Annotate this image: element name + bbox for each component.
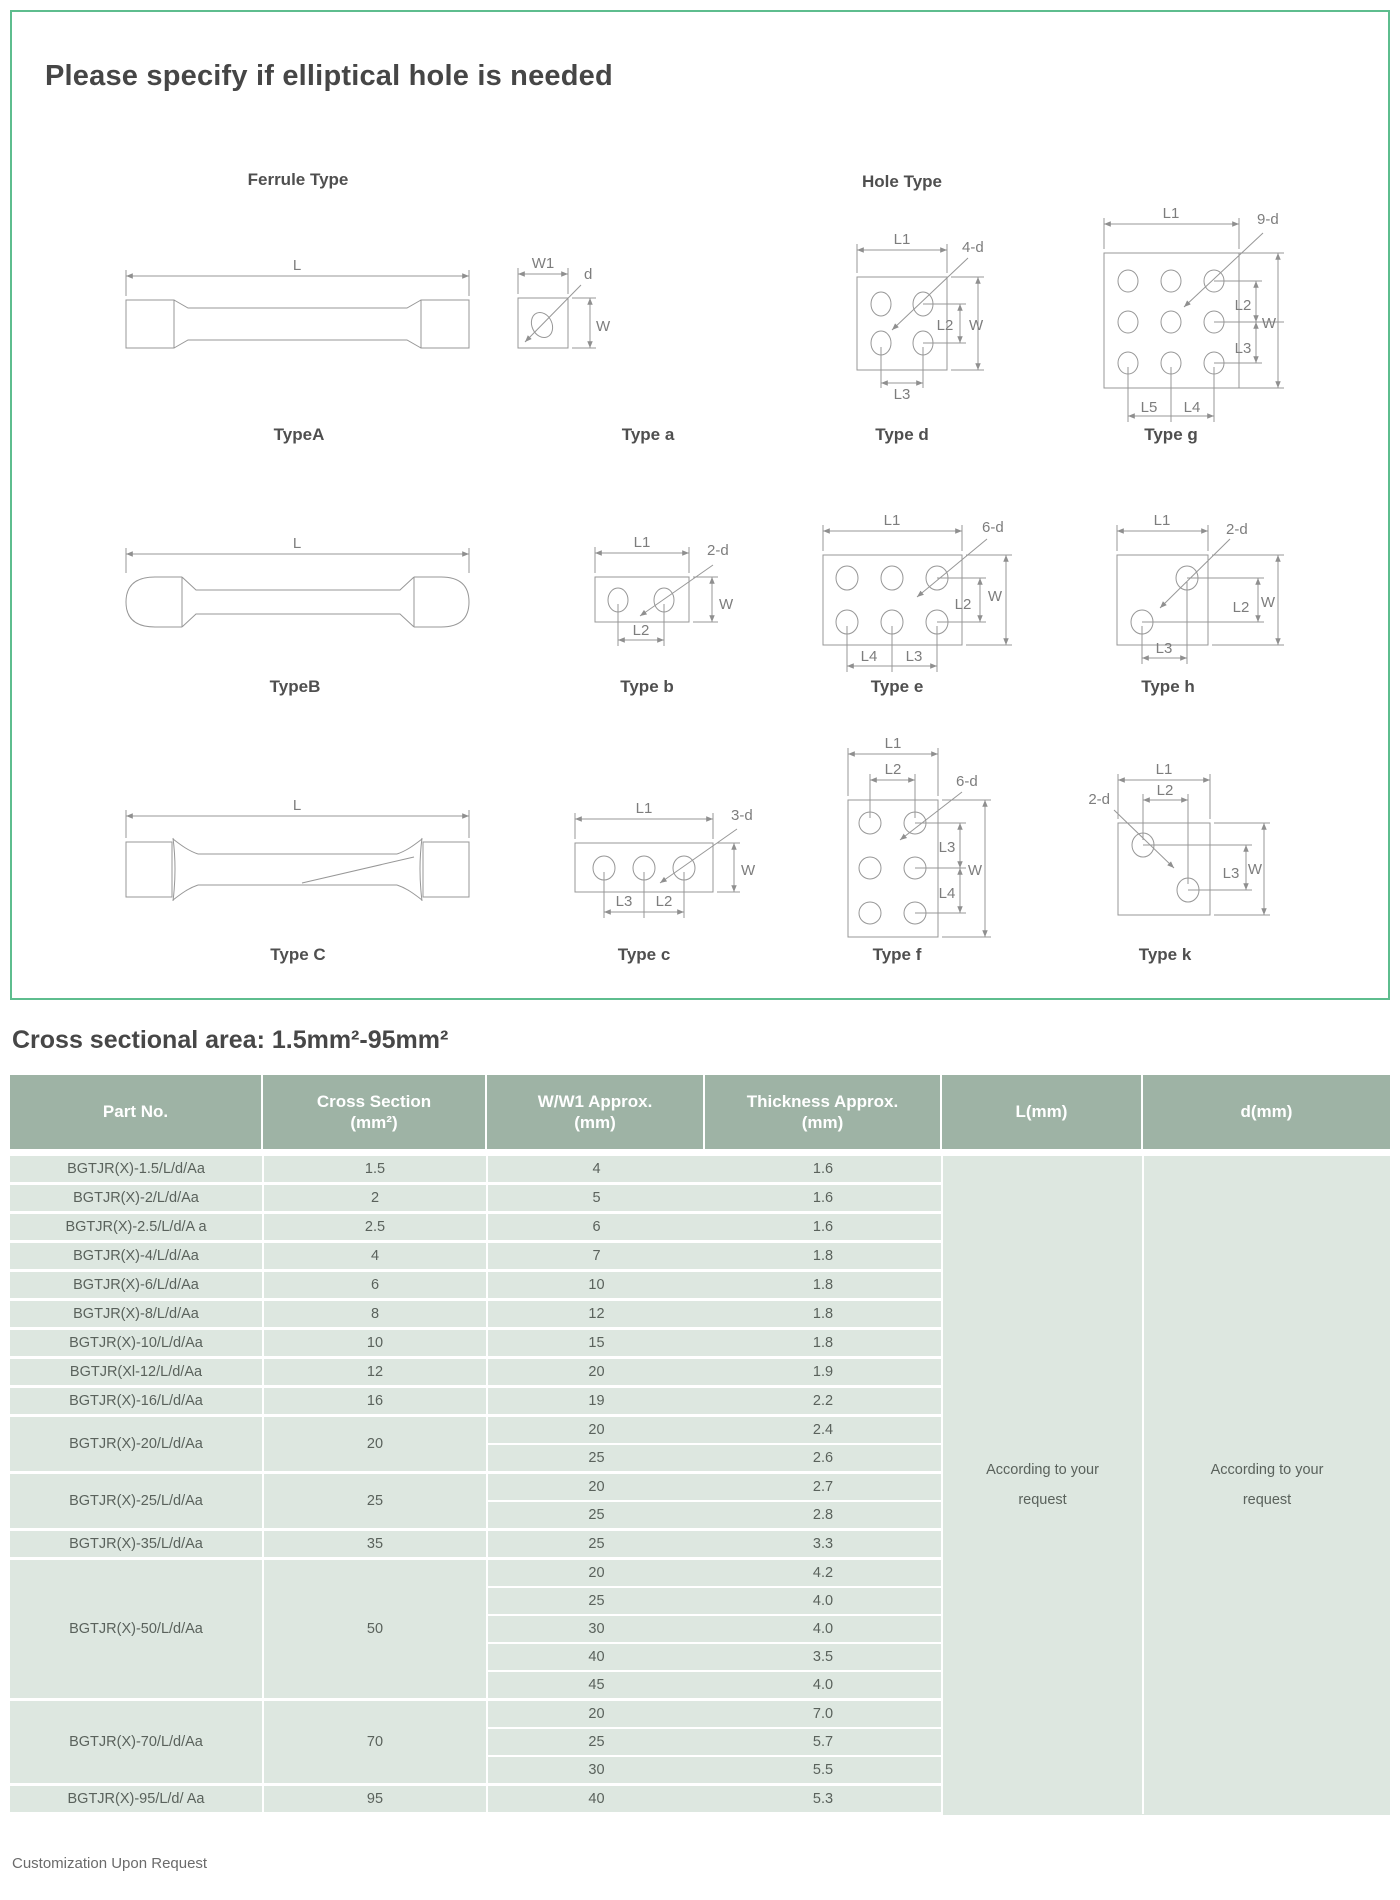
part-no-cell: BGTJR(X)-1.5/L/d/Aa — [10, 1156, 263, 1184]
svg-text:W: W — [969, 317, 984, 334]
thickness-cell: 2.7 — [705, 1473, 942, 1502]
technical-drawings: L d W1 W L1 4-d — [12, 12, 1388, 998]
thickness-cell: 1.6 — [705, 1184, 942, 1213]
w-approx-cell: 20 — [487, 1358, 705, 1387]
thickness-cell: 1.6 — [705, 1213, 942, 1242]
w-approx-cell: 4 — [487, 1156, 705, 1184]
svg-text:W: W — [968, 862, 983, 879]
svg-text:L2: L2 — [1233, 599, 1250, 616]
part-no-cell: BGTJR(X)-25/L/d/Aa — [10, 1473, 263, 1530]
w-approx-cell: 25 — [487, 1530, 705, 1559]
cross-section-cell: 2.5 — [263, 1213, 487, 1242]
part-no-cell: BGTJR(X)-95/L/d/ Aa — [10, 1785, 263, 1814]
svg-text:6-d: 6-d — [956, 773, 978, 790]
part-no-cell: BGTJR(X)-20/L/d/Aa — [10, 1416, 263, 1473]
svg-text:L2: L2 — [955, 596, 972, 613]
cross-section-cell: 8 — [263, 1300, 487, 1329]
w-approx-cell: 25 — [487, 1501, 705, 1530]
diagram-ferrule-type-c: L — [126, 797, 469, 901]
diagram-hole-type-k: L1 L2 2-d L3 W — [1088, 761, 1270, 915]
svg-text:L5: L5 — [1141, 399, 1158, 416]
thickness-cell: 3.5 — [705, 1643, 942, 1671]
svg-text:L: L — [293, 797, 301, 814]
type-label-hole-g: Type g — [1144, 425, 1198, 445]
thickness-cell: 4.0 — [705, 1615, 942, 1643]
w-approx-cell: 20 — [487, 1559, 705, 1588]
thickness-cell: 4.2 — [705, 1559, 942, 1588]
svg-text:L3: L3 — [906, 648, 923, 665]
svg-text:L2: L2 — [885, 761, 902, 778]
cross-section-cell: 2 — [263, 1184, 487, 1213]
svg-text:W: W — [719, 596, 734, 613]
thickness-cell: 4.0 — [705, 1587, 942, 1615]
footer-note: Customization Upon Request — [12, 1855, 1400, 1872]
thickness-cell: 3.3 — [705, 1530, 942, 1559]
svg-text:L2: L2 — [1235, 297, 1252, 314]
w-approx-cell: 20 — [487, 1473, 705, 1502]
thickness-cell: 5.5 — [705, 1756, 942, 1785]
svg-text:L3: L3 — [939, 839, 956, 856]
cross-section-cell: 4 — [263, 1242, 487, 1271]
table-header-row: Part No. Cross Section(mm²) W/W1 Approx.… — [10, 1075, 1390, 1149]
thickness-cell: 2.2 — [705, 1387, 942, 1416]
svg-text:W: W — [596, 318, 611, 335]
w-approx-cell: 15 — [487, 1329, 705, 1358]
section-heading: Cross sectional area: 1.5mm²-95mm² — [12, 1026, 1400, 1055]
w-approx-cell: 25 — [487, 1587, 705, 1615]
svg-text:L1: L1 — [1154, 512, 1171, 529]
diagram-hole-type-b: L1 2-d W L2 — [595, 534, 734, 646]
w-approx-cell: 20 — [487, 1700, 705, 1729]
svg-text:2-d: 2-d — [1226, 521, 1248, 538]
cross-section-cell: 6 — [263, 1271, 487, 1300]
svg-text:W: W — [1248, 861, 1263, 878]
col-header-d-mm: d(mm) — [1143, 1075, 1390, 1149]
cross-section-cell: 35 — [263, 1530, 487, 1559]
diagram-ferrule-type-a: L — [126, 257, 469, 348]
cross-section-cell: 25 — [263, 1473, 487, 1530]
diagram-hole-type-h: L1 2-d L2 W L3 — [1117, 512, 1284, 664]
thickness-cell: 1.9 — [705, 1358, 942, 1387]
type-label-hole-b: Type b — [620, 677, 674, 697]
thickness-cell: 1.6 — [705, 1156, 942, 1184]
diagram-panel: Please specify if elliptical hole is nee… — [10, 10, 1390, 1000]
part-no-cell: BGTJR(X)-10/L/d/Aa — [10, 1329, 263, 1358]
thickness-cell: 1.8 — [705, 1242, 942, 1271]
part-no-cell: BGTJR(X)-35/L/d/Aa — [10, 1530, 263, 1559]
col-header-l-mm: L(mm) — [942, 1075, 1143, 1149]
col-header-thickness: Thickness Approx.(mm) — [705, 1075, 942, 1149]
w-approx-cell: 12 — [487, 1300, 705, 1329]
d-note-cell: According to yourrequest — [1143, 1156, 1390, 1814]
type-label-ferrule-c: Type C — [270, 945, 325, 965]
diagram-hole-type-e: L1 6-d L2 W L4 L3 — [823, 512, 1012, 672]
w-approx-cell: 45 — [487, 1671, 705, 1700]
svg-text:2-d: 2-d — [707, 542, 729, 559]
svg-text:L1: L1 — [884, 512, 901, 529]
type-label-hole-f: Type f — [873, 945, 922, 965]
svg-text:L3: L3 — [1223, 865, 1240, 882]
thickness-cell: 7.0 — [705, 1700, 942, 1729]
col-header-cross-section: Cross Section(mm²) — [263, 1075, 487, 1149]
diagram-hole-type-d: L1 4-d L2 W L3 — [857, 231, 984, 403]
svg-text:W1: W1 — [532, 255, 555, 272]
svg-text:L4: L4 — [1184, 399, 1201, 416]
type-label-hole-c: Type c — [618, 945, 671, 965]
thickness-cell: 4.0 — [705, 1671, 942, 1700]
part-no-cell: BGTJR(X)-16/L/d/Aa — [10, 1387, 263, 1416]
thickness-cell: 1.8 — [705, 1271, 942, 1300]
cross-section-cell: 16 — [263, 1387, 487, 1416]
thickness-cell: 5.7 — [705, 1728, 942, 1756]
cross-section-cell: 95 — [263, 1785, 487, 1814]
svg-text:L3: L3 — [894, 386, 911, 403]
w-approx-cell: 40 — [487, 1785, 705, 1814]
type-label-hole-a: Type a — [622, 425, 675, 445]
w-approx-cell: 7 — [487, 1242, 705, 1271]
svg-text:L1: L1 — [894, 231, 911, 248]
svg-text:L2: L2 — [656, 893, 673, 910]
svg-text:L1: L1 — [1156, 761, 1173, 778]
spec-table-body: BGTJR(X)-1.5/L/d/Aa1.541.6According to y… — [10, 1156, 1390, 1814]
part-no-cell: BGTJR(X)-70/L/d/Aa — [10, 1700, 263, 1785]
thickness-cell: 1.8 — [705, 1300, 942, 1329]
svg-text:L: L — [293, 257, 301, 274]
svg-text:W: W — [741, 862, 756, 879]
part-no-cell: BGTJR(X)-8/L/d/Aa — [10, 1300, 263, 1329]
diagram-hole-type-a: d W1 W — [518, 255, 611, 348]
svg-text:L4: L4 — [861, 648, 878, 665]
svg-text:W: W — [988, 588, 1003, 605]
svg-text:2-d: 2-d — [1088, 791, 1110, 808]
svg-text:9-d: 9-d — [1257, 211, 1279, 228]
svg-text:3-d: 3-d — [731, 807, 753, 824]
cross-section-cell: 12 — [263, 1358, 487, 1387]
cross-section-cell: 70 — [263, 1700, 487, 1785]
svg-text:L3: L3 — [1156, 640, 1173, 657]
svg-text:L2: L2 — [1157, 782, 1174, 799]
w-approx-cell: 5 — [487, 1184, 705, 1213]
w-approx-cell: 20 — [487, 1416, 705, 1445]
svg-text:L3: L3 — [616, 893, 633, 910]
type-label-hole-k: Type k — [1139, 945, 1192, 965]
w-approx-cell: 25 — [487, 1728, 705, 1756]
thickness-cell: 2.8 — [705, 1501, 942, 1530]
table-row: BGTJR(X)-1.5/L/d/Aa1.541.6According to y… — [10, 1156, 1390, 1184]
type-label-ferrule-a: TypeA — [274, 425, 325, 445]
thickness-cell: 2.4 — [705, 1416, 942, 1445]
cross-section-cell: 1.5 — [263, 1156, 487, 1184]
part-no-cell: BGTJR(X)-2.5/L/d/A a — [10, 1213, 263, 1242]
type-label-ferrule-b: TypeB — [270, 677, 321, 697]
w-approx-cell: 10 — [487, 1271, 705, 1300]
svg-text:W: W — [1262, 315, 1277, 332]
svg-text:6-d: 6-d — [982, 519, 1004, 536]
part-no-cell: BGTJR(X)-2/L/d/Aa — [10, 1184, 263, 1213]
svg-text:L: L — [293, 535, 301, 552]
svg-text:L2: L2 — [937, 317, 954, 334]
diagram-hole-type-g: L1 9-d L2 L3 W L5 L4 — [1104, 205, 1284, 422]
cross-section-cell: 10 — [263, 1329, 487, 1358]
svg-text:L1: L1 — [636, 800, 653, 817]
diagram-hole-type-f: L1 L2 6-d L3 L4 W — [848, 735, 991, 937]
type-label-hole-h: Type h — [1141, 677, 1195, 697]
svg-text:L3: L3 — [1235, 340, 1252, 357]
type-label-hole-e: Type e — [871, 677, 924, 697]
col-header-w-approx: W/W1 Approx.(mm) — [487, 1075, 705, 1149]
cross-section-cell: 50 — [263, 1559, 487, 1700]
type-label-hole-d: Type d — [875, 425, 929, 445]
svg-text:L4: L4 — [939, 885, 956, 902]
thickness-cell: 5.3 — [705, 1785, 942, 1814]
part-no-cell: BGTJR(Xl-12/L/d/Aa — [10, 1358, 263, 1387]
w-approx-cell: 25 — [487, 1444, 705, 1473]
svg-text:L2: L2 — [633, 622, 650, 639]
w-approx-cell: 30 — [487, 1615, 705, 1643]
l-note-cell: According to yourrequest — [942, 1156, 1143, 1814]
svg-text:L1: L1 — [885, 735, 902, 752]
svg-text:L1: L1 — [1163, 205, 1180, 222]
spec-table: Part No. Cross Section(mm²) W/W1 Approx.… — [10, 1075, 1390, 1815]
cross-section-cell: 20 — [263, 1416, 487, 1473]
thickness-cell: 2.6 — [705, 1444, 942, 1473]
svg-text:4-d: 4-d — [962, 239, 984, 256]
diagram-ferrule-type-b: L — [126, 535, 469, 627]
col-header-part-no: Part No. — [10, 1075, 263, 1149]
thickness-cell: 1.8 — [705, 1329, 942, 1358]
w-approx-cell: 6 — [487, 1213, 705, 1242]
diagram-hole-type-c: L1 3-d W L3 L2 — [575, 800, 756, 918]
svg-text:W: W — [1261, 594, 1276, 611]
part-no-cell: BGTJR(X)-6/L/d/Aa — [10, 1271, 263, 1300]
part-no-cell: BGTJR(X)-50/L/d/Aa — [10, 1559, 263, 1700]
svg-text:L1: L1 — [634, 534, 651, 551]
part-no-cell: BGTJR(X)-4/L/d/Aa — [10, 1242, 263, 1271]
svg-text:d: d — [584, 266, 592, 283]
w-approx-cell: 19 — [487, 1387, 705, 1416]
w-approx-cell: 40 — [487, 1643, 705, 1671]
w-approx-cell: 30 — [487, 1756, 705, 1785]
